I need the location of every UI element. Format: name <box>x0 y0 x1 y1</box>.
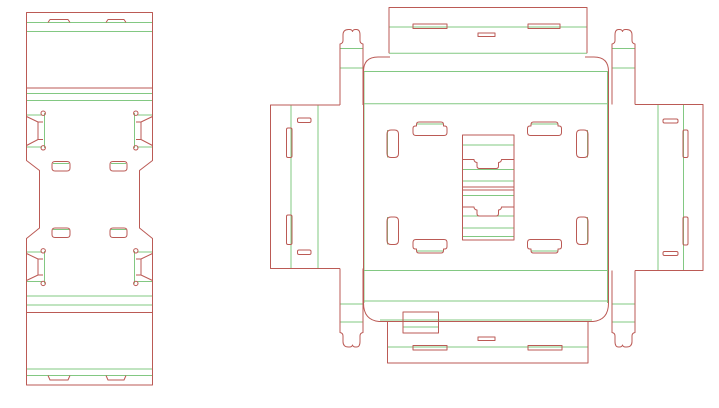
cross-carton-blank-cut-line <box>340 269 363 348</box>
tall-carton-blank-cut-line <box>27 117 44 146</box>
tall-carton-blank-cut-line <box>110 162 127 172</box>
tall-carton-blank-cut-line <box>52 162 70 172</box>
cross-carton-blank-cut-line <box>612 30 635 105</box>
cad-drawing-stage <box>0 0 719 408</box>
tall-carton-blank-cut-line <box>27 13 153 386</box>
cross-carton-blank-cut-line <box>340 30 363 106</box>
cross-carton-blank-cut-line <box>413 346 447 351</box>
cross-carton-blank-cut-line <box>663 252 678 256</box>
tall-carton-blank-cut-line <box>136 117 153 146</box>
cross-carton-blank-cut-line <box>612 271 635 348</box>
cross-carton-blank-cut-line <box>663 119 678 123</box>
cross-carton-blank-cut-line <box>635 105 703 271</box>
cross-carton-blank-cut-line <box>577 130 589 158</box>
cross-carton-blank-cut-line <box>387 217 399 245</box>
cross-carton-blank-cut-line <box>528 24 560 29</box>
tall-carton-blank-cut-line <box>48 376 70 381</box>
cross-carton-blank-cut-line <box>387 130 399 158</box>
dieline-svg <box>0 0 719 408</box>
cross-carton-blank-cut-line <box>528 346 562 351</box>
cross-carton-blank-cut-line <box>389 8 587 54</box>
cross-carton-blank-cut-line <box>463 207 515 216</box>
tall-carton-blank-cut-line <box>136 254 153 281</box>
cross-carton-blank-cut-line <box>298 118 312 123</box>
tall-carton-blank-cut-line <box>41 249 45 253</box>
tall-carton-blank <box>27 13 153 386</box>
cross-carton-blank-cut-line <box>271 105 341 269</box>
cross-carton-blank-cut-line <box>577 217 589 245</box>
cross-carton-blank-cut-line <box>463 160 515 169</box>
tall-carton-blank-cut-line <box>134 249 138 253</box>
tall-carton-blank-cut-line <box>27 254 44 281</box>
cross-carton-blank-cut-line <box>478 337 495 341</box>
cross-carton-blank-cut-line <box>388 322 589 364</box>
cross-carton-blank-cut-line <box>364 57 609 322</box>
cross-carton-blank <box>271 8 704 364</box>
tall-carton-blank-cut-line <box>106 376 126 381</box>
cross-carton-blank-cut-line <box>413 24 447 29</box>
cross-carton-blank-cut-line <box>478 33 495 37</box>
cross-carton-blank-cut-line <box>298 250 312 255</box>
cross-carton-blank-cut-line <box>403 312 439 333</box>
